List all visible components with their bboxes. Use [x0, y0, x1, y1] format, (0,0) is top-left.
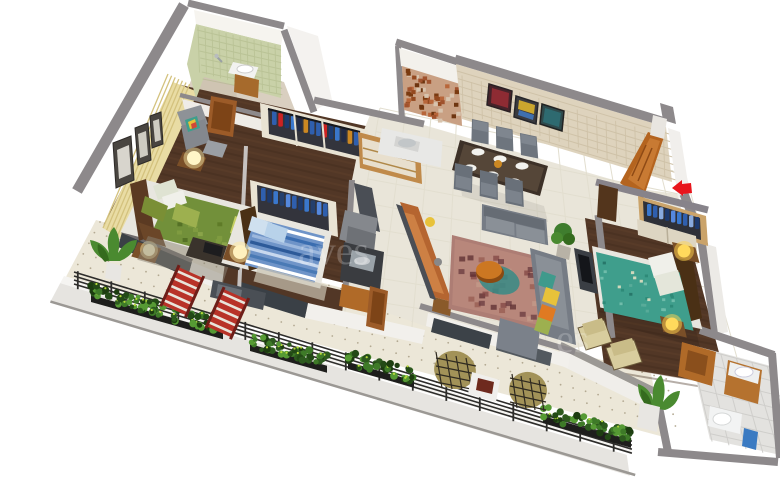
svg-text:aves: aves — [298, 228, 369, 273]
svg-text:es: es — [556, 316, 589, 361]
